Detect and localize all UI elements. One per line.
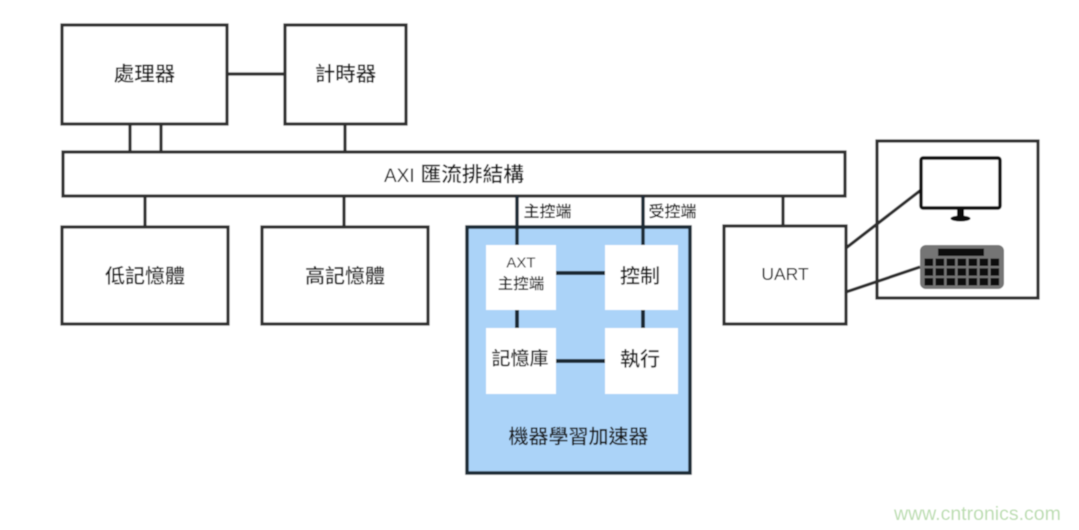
svg-text:AXI: AXI bbox=[384, 166, 415, 187]
svg-text:www.cntronics.com: www.cntronics.com bbox=[893, 503, 1061, 525]
svg-text:UART: UART bbox=[761, 264, 809, 284]
svg-text:AXT: AXT bbox=[506, 255, 535, 272]
